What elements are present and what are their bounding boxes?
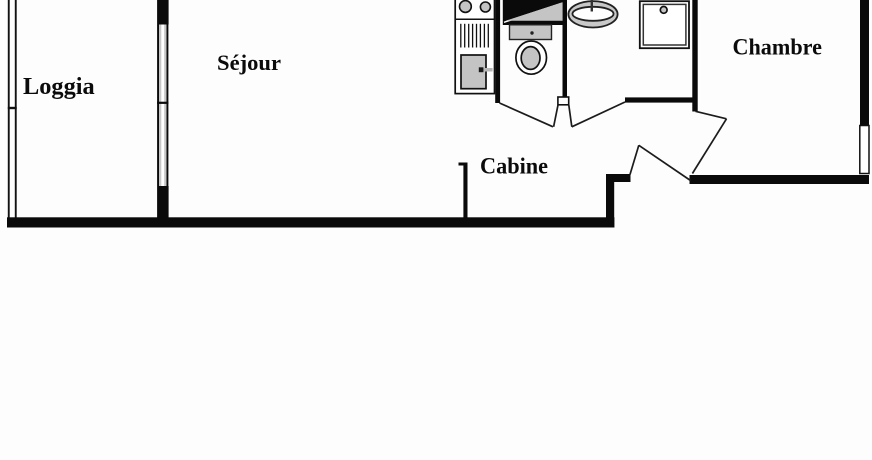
svg-text:Cabine: Cabine — [480, 154, 548, 179]
svg-text:Loggia: Loggia — [23, 74, 95, 100]
svg-text:Chambre: Chambre — [733, 35, 822, 60]
svg-text:Séjour: Séjour — [217, 50, 281, 75]
